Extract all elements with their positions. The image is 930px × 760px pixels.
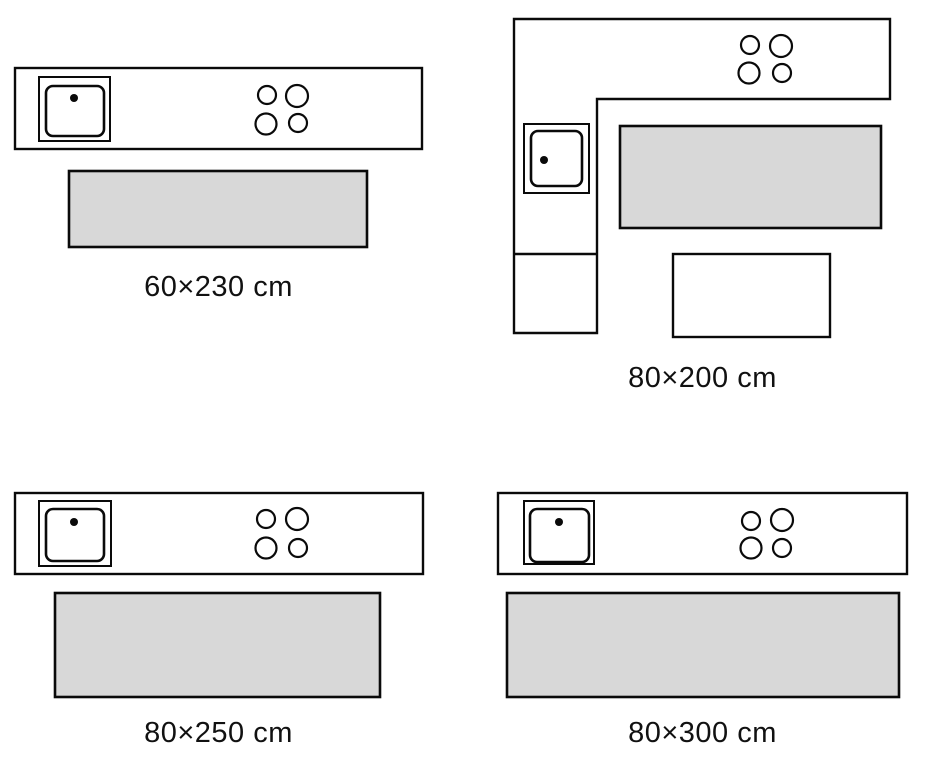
sink-icon [39, 501, 111, 566]
sink-outer [524, 124, 589, 193]
rug-rect [620, 126, 881, 228]
diagram-runner-80x200: 80×200 cm [498, 12, 907, 393]
table-outline [673, 254, 830, 337]
burner-small [741, 36, 759, 54]
size-label: 60×230 cm [0, 273, 437, 302]
diagram-runner-80x250: 80×250 cm [0, 480, 437, 748]
kitchen-plan-straight [0, 480, 437, 710]
faucet-dot-icon [70, 518, 78, 526]
size-guide-canvas: 60×230 cm 80×200 cm [0, 0, 930, 760]
burner-large [286, 508, 308, 530]
burner-large [741, 538, 762, 559]
sink-basin [530, 509, 589, 562]
stove-burners-icon [256, 85, 309, 135]
rug-rect [69, 171, 367, 247]
rug-rect [507, 593, 899, 697]
sink-icon [39, 77, 110, 141]
sink-icon [524, 124, 589, 193]
kitchen-plan-straight [0, 50, 437, 250]
stove-burners-icon [741, 509, 794, 559]
burner-large [739, 63, 760, 84]
kitchen-plan-straight [490, 480, 915, 710]
faucet-dot-icon [70, 94, 78, 102]
kitchen-plan-l-shaped [498, 12, 907, 342]
rug-rect [55, 593, 380, 697]
burner-small [773, 64, 791, 82]
burner-small [773, 539, 791, 557]
burner-small [257, 510, 275, 528]
faucet-dot-icon [540, 156, 548, 164]
sink-icon [524, 501, 594, 564]
size-label: 80×200 cm [498, 364, 907, 393]
size-label: 80×250 cm [0, 719, 437, 748]
sink-basin [46, 86, 104, 136]
burner-small [742, 512, 760, 530]
burner-large [256, 114, 277, 135]
burner-large [256, 538, 277, 559]
burner-small [289, 539, 307, 557]
burner-small [289, 114, 307, 132]
diagram-runner-80x300: 80×300 cm [490, 480, 915, 748]
stove-burners-icon [739, 35, 793, 84]
stove-burners-icon [256, 508, 309, 559]
burner-large [770, 35, 792, 57]
sink-basin [531, 131, 582, 186]
sink-basin [46, 509, 104, 561]
faucet-dot-icon [555, 518, 563, 526]
size-label: 80×300 cm [490, 719, 915, 748]
burner-large [771, 509, 793, 531]
burner-large [286, 85, 308, 107]
diagram-runner-60x230: 60×230 cm [0, 50, 437, 302]
burner-small [258, 86, 276, 104]
